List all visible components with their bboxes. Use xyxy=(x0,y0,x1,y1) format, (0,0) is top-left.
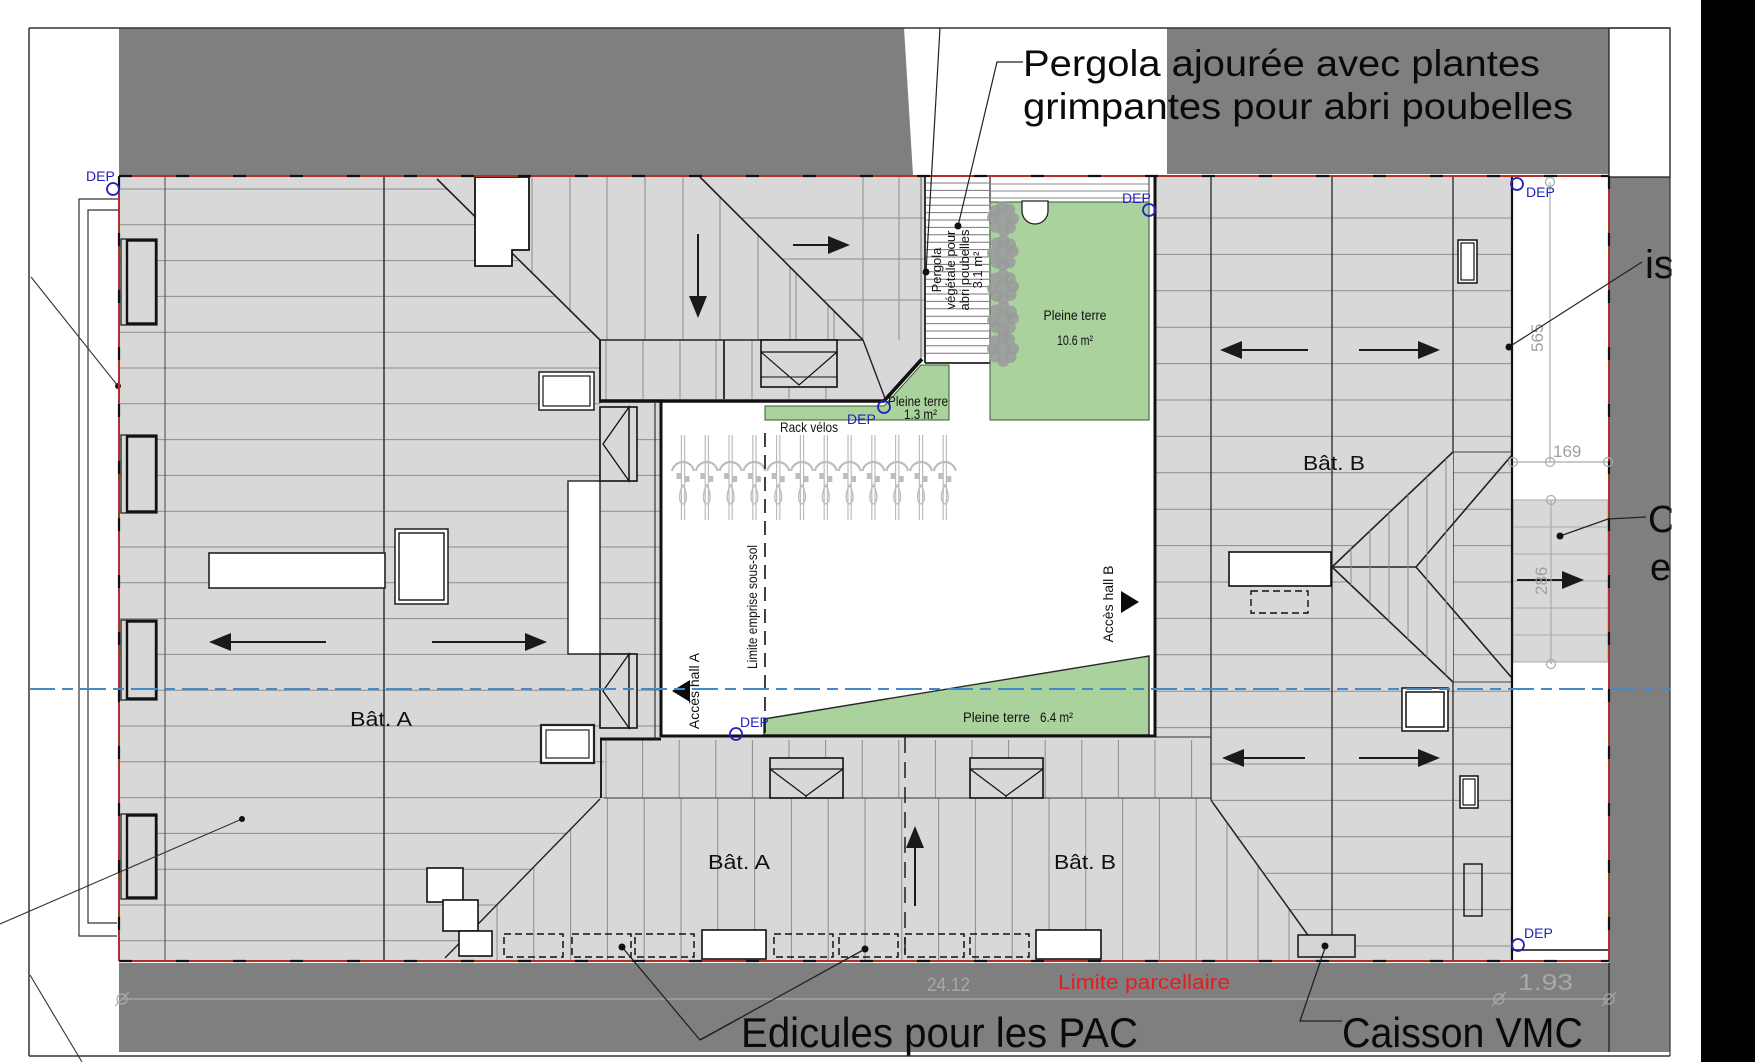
svg-text:végétale pour: végétale pour xyxy=(943,230,958,309)
svg-text:Limite emprise sous-sol: Limite emprise sous-sol xyxy=(745,545,760,669)
svg-text:DEP: DEP xyxy=(86,168,115,184)
svg-text:Accès hall B: Accès hall B xyxy=(1100,565,1116,642)
svg-text:Limite parcellaire: Limite parcellaire xyxy=(1058,972,1230,994)
svg-text:286: 286 xyxy=(1532,567,1551,595)
svg-text:Pleine terre: Pleine terre xyxy=(1044,307,1107,323)
svg-text:169: 169 xyxy=(1553,442,1581,461)
svg-text:Pergola ajourée avec plantes: Pergola ajourée avec plantes xyxy=(1023,43,1540,84)
svg-text:DEP: DEP xyxy=(740,714,769,730)
svg-text:grimpantes pour abri poubelles: grimpantes pour abri poubelles xyxy=(1023,86,1573,127)
svg-text:DEP: DEP xyxy=(1526,184,1555,200)
svg-text:Pergola: Pergola xyxy=(929,247,944,293)
svg-text:1.3 m²: 1.3 m² xyxy=(904,406,937,422)
svg-text:24.12: 24.12 xyxy=(927,975,970,996)
svg-text:3.1 m²: 3.1 m² xyxy=(970,251,985,289)
svg-text:6.4 m²: 6.4 m² xyxy=(1040,709,1073,725)
svg-text:Edicules pour les PAC: Edicules pour les PAC xyxy=(741,1009,1138,1056)
svg-text:DEP: DEP xyxy=(1524,925,1553,941)
svg-text:DEP: DEP xyxy=(847,411,876,427)
svg-text:10.6 m²: 10.6 m² xyxy=(1057,332,1093,348)
svg-text:Bât. B: Bât. B xyxy=(1303,453,1365,475)
svg-text:Accès hall A: Accès hall A xyxy=(686,652,702,729)
svg-text:Pleine terre: Pleine terre xyxy=(963,709,1030,725)
svg-text:565: 565 xyxy=(1528,324,1547,352)
svg-text:1.93: 1.93 xyxy=(1518,969,1573,995)
svg-text:Bât. B: Bât. B xyxy=(1054,852,1116,874)
svg-text:Caisson VMC: Caisson VMC xyxy=(1342,1009,1583,1056)
svg-text:Bât. A: Bât. A xyxy=(708,852,771,874)
svg-text:Bât. A: Bât. A xyxy=(350,709,413,731)
svg-text:Rack vélos: Rack vélos xyxy=(780,419,838,435)
